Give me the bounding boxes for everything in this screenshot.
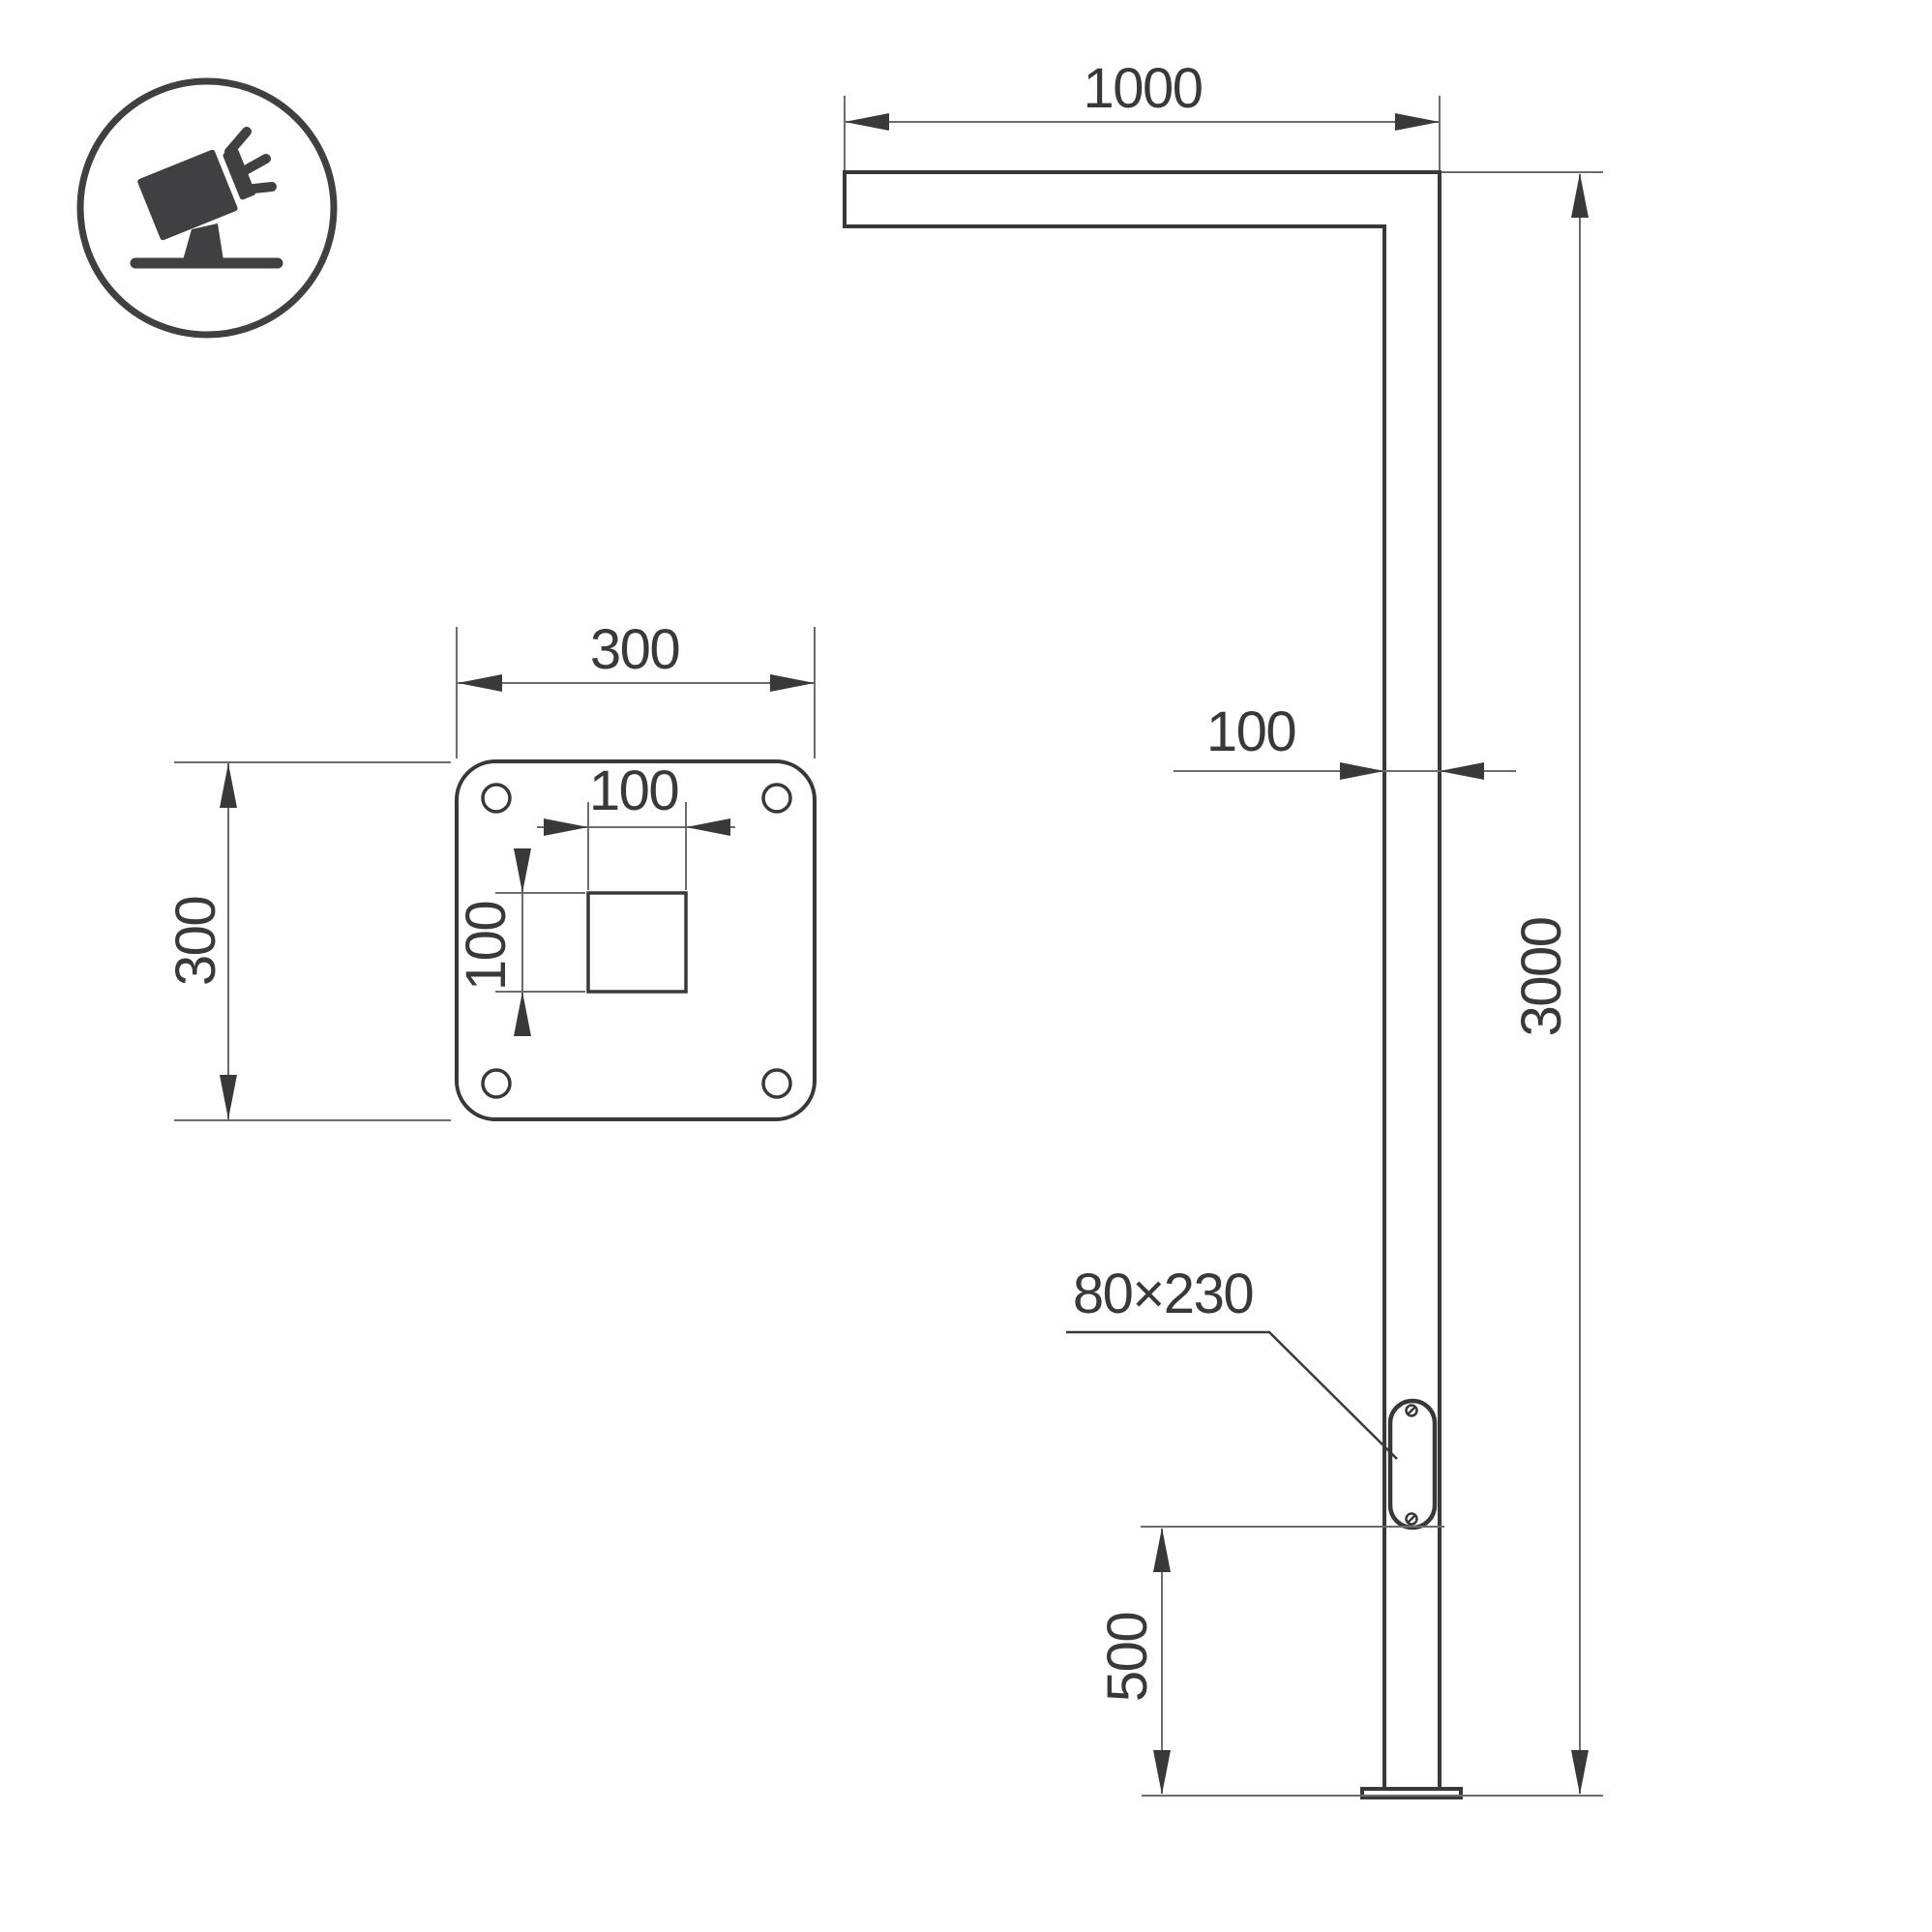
dim-square-height: 100 (459, 902, 515, 991)
pole-outline (845, 172, 1440, 1790)
dim-hatch-size: 80×230 (1073, 1266, 1253, 1323)
dim-pole-width: 100 (1206, 704, 1295, 760)
dim-hatch-height: 500 (1100, 1613, 1156, 1702)
floodlight-icon (80, 81, 334, 335)
access-hatch (1390, 1401, 1435, 1528)
dim-pole-height: 3000 (1514, 917, 1570, 1036)
dim-plate-width: 300 (590, 622, 679, 678)
dimension-lines (845, 96, 1603, 1796)
drawing-linework (0, 0, 1932, 1932)
dim-square-width: 100 (589, 763, 678, 819)
dim-plate-side: 300 (168, 897, 224, 986)
dim-arm-length: 1000 (1083, 61, 1202, 117)
hatch-leader-line (1066, 1332, 1397, 1459)
dimension-arrows (845, 113, 1589, 1795)
technical-drawing-canvas: 1000 100 3000 80×230 500 300 300 100 100 (0, 0, 1932, 1932)
